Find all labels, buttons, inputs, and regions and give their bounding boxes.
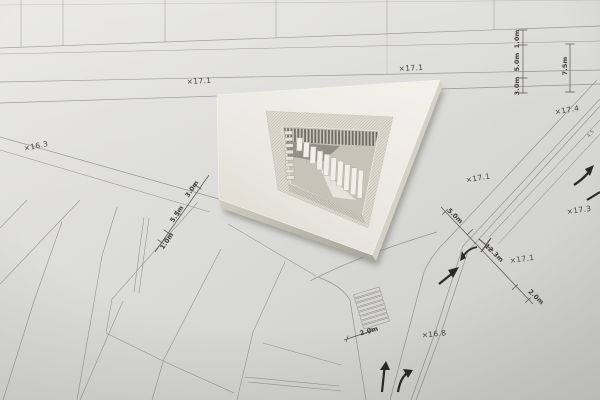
spot-elevation-label: ×16.3 bbox=[23, 139, 49, 153]
dimension-label: 3.0m bbox=[183, 179, 200, 199]
dimension-label: 7.5m bbox=[561, 57, 569, 76]
dimension-label: 4.5 bbox=[586, 129, 596, 139]
spot-elevation-label: ×17.1 bbox=[509, 253, 535, 265]
spot-elevation-label: ×16.8 bbox=[421, 328, 447, 340]
spot-elevation-label: ×17.1 bbox=[398, 63, 423, 73]
dimension-label: 5.0m bbox=[445, 207, 464, 226]
dimension-label: 5.5m bbox=[168, 204, 185, 224]
dimension-label: 2.0m bbox=[526, 288, 545, 307]
dimension-label: 1.0m bbox=[513, 30, 521, 49]
site-plan-photo: ×16.3 ×17.1 ×17.1 ×17.4 ×17.1 ×17.3 ×17.… bbox=[0, 0, 600, 400]
dimension-label: 1.0m bbox=[158, 231, 175, 251]
spot-elevation-label: ×17.1 bbox=[186, 76, 211, 86]
dimension-label: 2.0m bbox=[359, 325, 379, 338]
dimension-label: 5.0m bbox=[513, 53, 521, 72]
spot-elevation-label: ×17.4 bbox=[554, 103, 580, 116]
spot-elevation-label: ×17.3 bbox=[566, 204, 592, 216]
dimension-label: 3.0m bbox=[513, 77, 521, 96]
dimension-label: 12.3m bbox=[483, 242, 505, 264]
spot-elevation-label: ×17.1 bbox=[465, 171, 491, 184]
plan-labels: ×16.3 ×17.1 ×17.1 ×17.4 ×17.1 ×17.3 ×17.… bbox=[0, 0, 600, 400]
